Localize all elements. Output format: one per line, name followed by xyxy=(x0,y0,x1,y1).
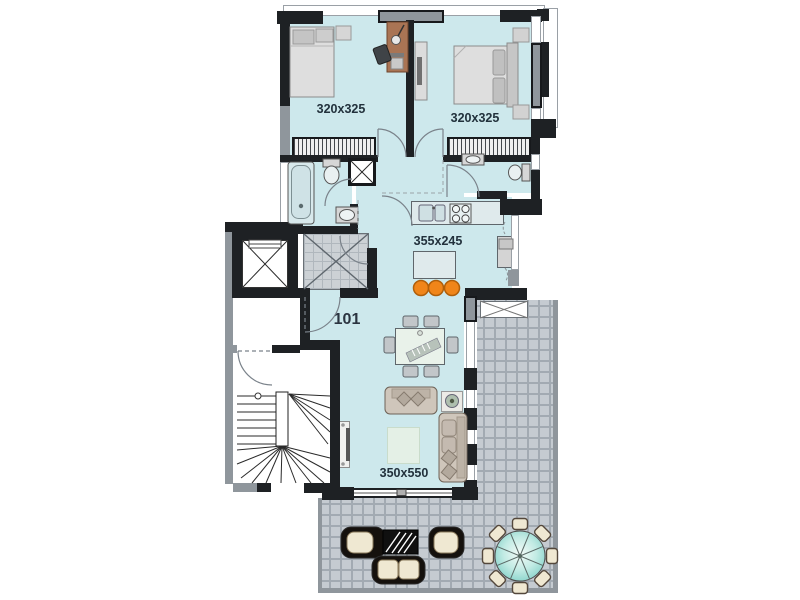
rug xyxy=(387,427,420,464)
stairwell-floor xyxy=(233,348,330,483)
wall-pillar xyxy=(464,296,477,322)
terrace-edge xyxy=(553,300,558,593)
terrace-edge xyxy=(318,588,558,593)
wall-segment xyxy=(330,345,340,490)
entry-vestibule-tiles xyxy=(303,233,369,290)
window xyxy=(531,154,540,170)
terrace-planter xyxy=(480,301,528,318)
dimension-label-living: 350x550 xyxy=(374,466,434,480)
window-mullion xyxy=(464,444,477,465)
wall-segment xyxy=(340,288,378,298)
wall-bedroom-divider xyxy=(406,20,414,157)
dimension-label-bedroom-left: 320x325 xyxy=(311,102,371,116)
wardrobe-left xyxy=(292,137,376,157)
kitchen-counter xyxy=(411,201,504,225)
wall-pillar xyxy=(531,43,542,108)
wall-segment xyxy=(322,487,354,500)
wall-segment xyxy=(233,483,257,492)
window-mullion xyxy=(464,480,477,497)
terrace-edge xyxy=(318,498,322,590)
window xyxy=(280,162,290,224)
kitchen-island xyxy=(413,251,456,279)
wall-segment xyxy=(531,138,540,154)
wall-segment xyxy=(500,199,542,215)
window xyxy=(511,215,519,270)
room-fill-bathroom1 xyxy=(286,157,352,229)
dining-table xyxy=(395,328,445,365)
elevator-cab xyxy=(242,240,288,288)
wall-segment xyxy=(443,155,533,162)
window-band xyxy=(466,300,475,496)
wall-segment xyxy=(531,170,540,202)
dimension-label-kitchen: 355x245 xyxy=(408,234,468,248)
wall-segment xyxy=(508,270,519,286)
unit-number: 101 xyxy=(329,311,365,329)
wall-segment xyxy=(477,191,507,199)
wall-segment xyxy=(531,119,556,138)
wall-segment xyxy=(225,345,237,353)
window-mullion xyxy=(464,408,477,430)
wall-segment xyxy=(272,345,300,353)
window xyxy=(531,16,541,43)
wardrobe-right xyxy=(447,137,531,157)
wall-segment xyxy=(280,13,290,106)
room-fill-bathroom2 xyxy=(443,157,531,193)
side-table xyxy=(441,391,463,412)
wall-segment xyxy=(257,483,271,492)
floor-plan: 320x325 320x325 355x245 350x550 101 xyxy=(0,0,800,600)
window-mullion xyxy=(464,368,477,390)
wall-segment xyxy=(280,106,290,162)
dimension-label-bedroom-right: 320x325 xyxy=(445,111,505,125)
sliding-door xyxy=(354,488,452,498)
service-shaft xyxy=(348,158,376,186)
